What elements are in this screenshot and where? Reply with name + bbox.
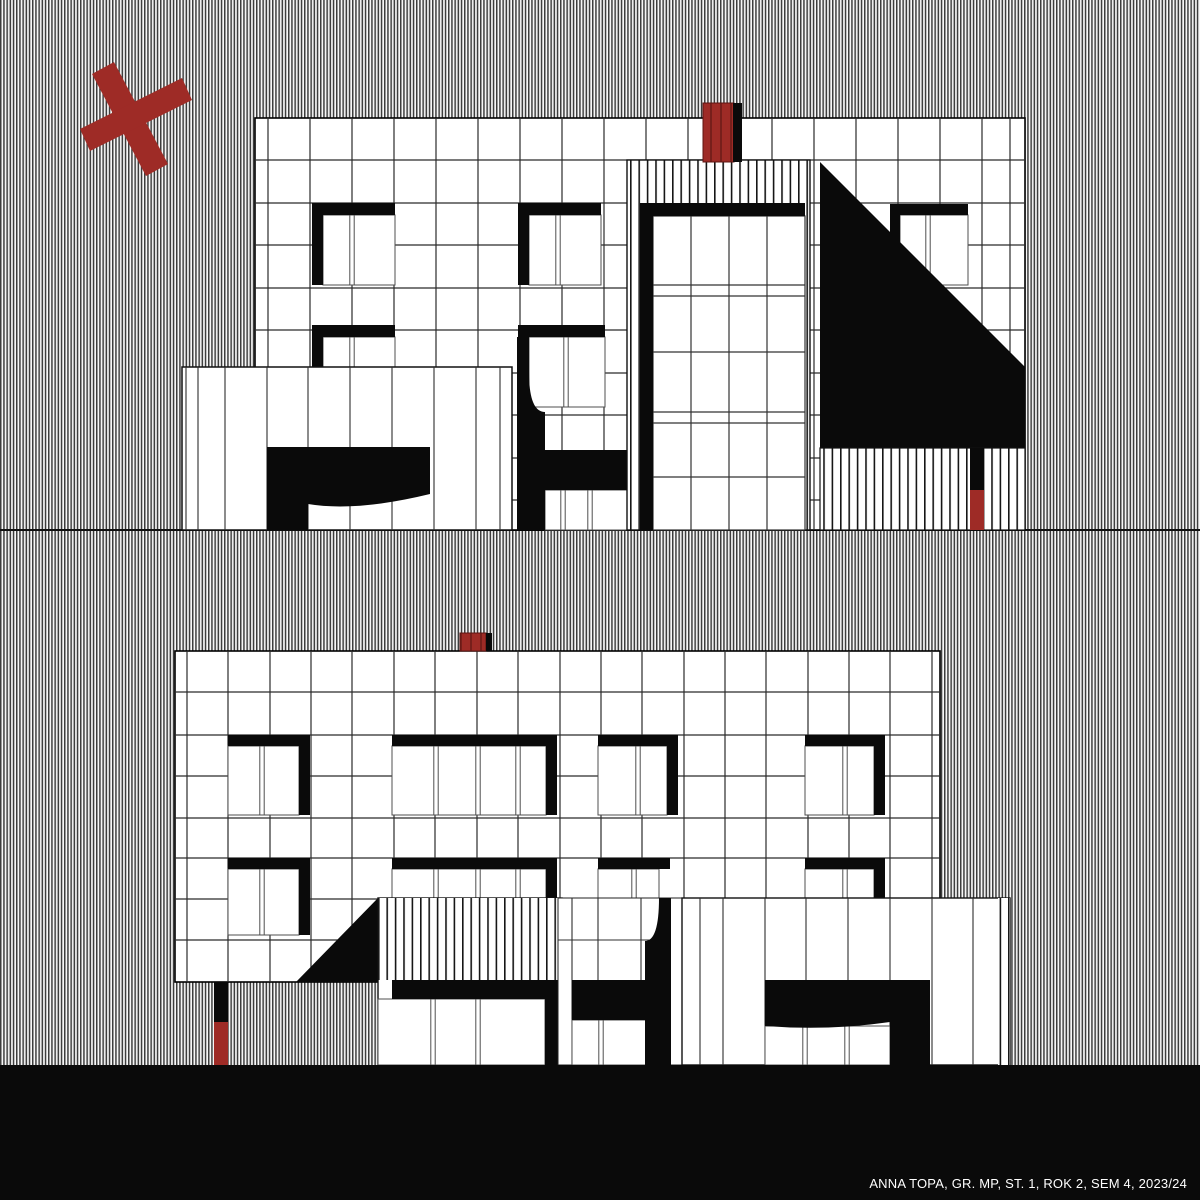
top-base-stripes (820, 448, 1025, 530)
bottom-chimney (460, 633, 486, 651)
bottom-right-annex-windows (765, 1026, 890, 1065)
credit-text: ANNA TOPA, GR. MP, ST. 1, ROK 2, SEM 4, … (869, 1176, 1187, 1191)
bottom-post-red (214, 1022, 228, 1065)
bottom-mid-annex-stripes (378, 898, 562, 980)
elevation-drawing (0, 0, 1200, 1200)
top-chimney (703, 103, 734, 162)
top-post-red (970, 490, 984, 530)
bottom-midzone-block (572, 980, 652, 1020)
bottom-post (214, 982, 228, 1022)
bottom-chimney-edge (486, 633, 492, 651)
bottom-right-annex-stripecol (998, 898, 1010, 1065)
top-chimney-edge (733, 103, 742, 162)
top-post (970, 448, 984, 490)
bottom-mid-annex-windows (378, 999, 545, 1065)
elevation-poster: ANNA TOPA, GR. MP, ST. 1, ROK 2, SEM 4, … (0, 0, 1200, 1200)
bottom-midzone-windows (572, 1020, 652, 1065)
